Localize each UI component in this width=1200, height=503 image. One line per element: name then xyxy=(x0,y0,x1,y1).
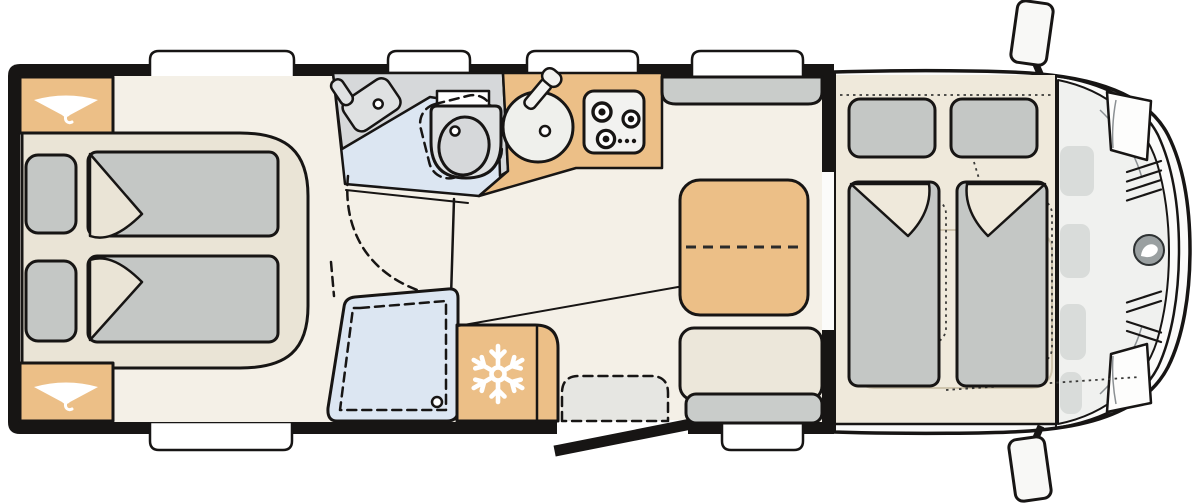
fridge-body xyxy=(457,325,558,421)
side-mirror-bottom xyxy=(1008,426,1052,502)
burner-center xyxy=(628,116,634,122)
mirror-glass xyxy=(1010,0,1054,66)
window-bottom-1 xyxy=(150,422,292,450)
sink-drain xyxy=(540,126,550,136)
knob-dot xyxy=(625,139,629,143)
side-mirror-top xyxy=(1010,0,1054,76)
burner xyxy=(593,103,611,121)
side-bench xyxy=(662,77,822,104)
knob-dot xyxy=(618,139,622,143)
floorplan-stage xyxy=(0,0,1200,503)
dashboard-module-4 xyxy=(1060,372,1082,414)
dashboard-module-1 xyxy=(1060,146,1094,196)
window-top-4 xyxy=(692,51,803,78)
dashboard-module-2 xyxy=(1060,224,1090,278)
pillow xyxy=(951,99,1037,157)
dashboard-module-3 xyxy=(1060,304,1086,360)
shower-drain xyxy=(432,397,442,407)
entry-step xyxy=(562,376,668,421)
burner-center xyxy=(603,136,610,143)
hob-knobs xyxy=(618,139,636,143)
pillow xyxy=(849,99,935,157)
window-bottom-2 xyxy=(722,422,803,450)
burner xyxy=(623,111,639,127)
entrance xyxy=(560,376,686,450)
pillow xyxy=(26,261,76,341)
mirror-glass xyxy=(1008,436,1052,502)
burner xyxy=(597,130,614,147)
floorplan-svg xyxy=(0,0,1200,503)
brand-badge xyxy=(1134,235,1164,265)
knob-dot xyxy=(632,139,636,143)
pillow xyxy=(26,155,76,233)
shower xyxy=(328,289,458,421)
window-top-1 xyxy=(150,51,294,78)
cab-passage-right-wall-gap xyxy=(822,172,834,330)
bench-seat-backrest xyxy=(686,394,822,423)
bench-seat-cushion xyxy=(680,328,822,400)
burner-center xyxy=(598,108,605,115)
stove xyxy=(584,91,644,153)
toilet-flush-button xyxy=(451,127,460,136)
